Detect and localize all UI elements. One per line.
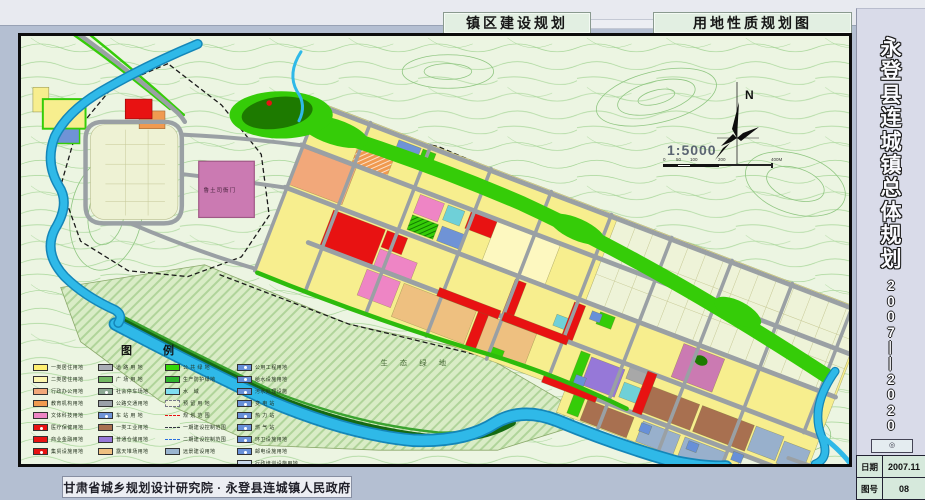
legend-item: 公 共 绿 地: [165, 361, 237, 373]
sidebar-title-char: 永: [881, 37, 902, 60]
scale-tick: 0: [663, 157, 666, 162]
legend-item: 环卫设施用地: [237, 434, 311, 446]
legend-swatch: [98, 436, 113, 443]
legend-swatch: [165, 439, 180, 440]
sidebar-title-char: 县: [881, 84, 902, 107]
map-title-right: 用地性质规划图: [653, 12, 852, 34]
legend-item: 一类居住用地: [33, 361, 98, 373]
sidebar-title-char: 镇: [881, 154, 902, 177]
legend-swatch: [237, 412, 252, 419]
credit-box: 甘肃省城乡规划设计研究院 · 永登县连城镇人民政府: [62, 476, 352, 498]
legend-label: 社会停车场地: [116, 388, 148, 395]
legend-label: 污水处理设施: [255, 388, 287, 395]
legend-item: 道 路 用 地: [98, 361, 165, 373]
legend-label: 燃 气 站: [255, 424, 275, 431]
legend-column: 公用工程用地给水设施用地污水处理设施变 电 站热 力 站燃 气 站环卫设施用地邮…: [237, 361, 311, 467]
legend-item: 普通仓储用地: [98, 434, 165, 446]
legend-label: 行政培训设施用地: [255, 460, 298, 467]
legend-label: 文体科技用地: [51, 412, 83, 419]
legend-swatch: [33, 376, 48, 383]
map-frame: 鲁土司衙门 生 态 绿 地 N: [18, 33, 852, 467]
legend-swatch: [98, 412, 113, 419]
legend-item: 行政培训设施用地: [237, 458, 311, 467]
legend-label: 二期建设控制范围: [183, 436, 226, 443]
legend-item: 变 电 站: [237, 397, 311, 409]
sidebar-info-row: 图号08: [856, 478, 925, 500]
sidebar-title-char: 城: [881, 131, 902, 154]
legend-label: 热 力 站: [255, 412, 275, 419]
legend-label: 公 共 绿 地: [183, 364, 210, 371]
legend-label: 行政办公用地: [51, 388, 83, 395]
legend-item: 燃 气 站: [237, 421, 311, 433]
legend-label: 变 电 站: [255, 400, 275, 407]
map-title-left: 镇区建设规划: [443, 12, 591, 34]
scale-ticks: 050100200400M: [663, 157, 793, 163]
legend-swatch: [165, 427, 180, 428]
legend-swatch: [33, 412, 48, 419]
legend-item: 广 场 用 地: [98, 373, 165, 385]
legend-item: 水 域: [165, 385, 237, 397]
legend-column: 道 路 用 地广 场 用 地社会停车场地公路交通用地车 站 用 地一类工业用地普…: [98, 361, 165, 467]
legend-swatch: [98, 364, 113, 371]
legend-item: 教育机构用地: [33, 397, 98, 409]
sidebar-title-char: 连: [881, 107, 902, 130]
legend-item: 预 留 用 地: [165, 397, 237, 409]
legend-item: 医疗保健用地: [33, 421, 98, 433]
sidebar-period-char: 7: [887, 325, 895, 341]
legend-swatch: [237, 424, 252, 431]
sidebar-info-row: 日期2007.11: [856, 456, 925, 478]
legend-swatch: [165, 376, 180, 383]
legend-item: 规 划 范 围: [165, 409, 237, 421]
sidebar-title-char: 规: [881, 224, 902, 247]
legend-label: 露天堆场用地: [116, 448, 148, 455]
legend-swatch: [33, 424, 48, 431]
sidebar-ornament: ◎: [871, 439, 913, 453]
sidebar-title-char: 划: [881, 248, 902, 271]
sidebar-period-char: 0: [887, 387, 895, 403]
legend-swatch: [98, 376, 113, 383]
legend-item: 行政办公用地: [33, 385, 98, 397]
scale-tick: 400M: [771, 157, 782, 162]
legend-swatch: [98, 424, 113, 431]
scale-bar-segments: [663, 163, 793, 167]
sidebar-info-table: 日期2007.11图号08: [856, 455, 925, 500]
legend-swatch: [165, 400, 180, 407]
scale-tick: 200: [718, 157, 726, 162]
legend-item: 热 力 站: [237, 409, 311, 421]
legend-label: 生产防护绿地: [183, 376, 215, 383]
legend-label: 邮电设施用地: [255, 448, 287, 455]
legend-swatch: [33, 436, 48, 443]
eco-green-label: 生 态 绿 地: [380, 357, 451, 367]
sidebar-period-char: —: [883, 341, 899, 355]
info-value: 08: [883, 478, 925, 499]
sidebar-period-char: 2: [887, 403, 895, 419]
sidebar-period-char: 2: [887, 278, 895, 294]
legend-label: 水 域: [183, 388, 199, 395]
legend-swatch: [165, 448, 180, 455]
legend-item: 一类工业用地: [98, 421, 165, 433]
legend-item: 公用工程用地: [237, 361, 311, 373]
legend-swatch: [98, 400, 113, 407]
legend-swatch: [237, 460, 252, 467]
legend-item: 污水处理设施: [237, 385, 311, 397]
legend-swatch: [237, 448, 252, 455]
legend-swatch: [165, 364, 180, 371]
legend-label: 预 留 用 地: [183, 400, 210, 407]
legend-label: 道 路 用 地: [116, 364, 143, 371]
info-label: 日期: [856, 456, 883, 477]
legend-swatch: [33, 448, 48, 455]
legend-label: 医疗保健用地: [51, 424, 83, 431]
sidebar: 永登县连城镇总体规划 2007——2020 ◎ 日期2007.11图号08: [856, 8, 925, 500]
legend-swatch: [237, 436, 252, 443]
legend-item: 给水设施用地: [237, 373, 311, 385]
legend-label: 一期建设控制范围: [183, 424, 226, 431]
sidebar-period-char: —: [883, 357, 899, 371]
legend-swatch: [33, 364, 48, 371]
sidebar-title: 永登县连城镇总体规划: [857, 9, 925, 271]
sidebar-title-char: 体: [881, 201, 902, 224]
info-value: 2007.11: [883, 456, 925, 477]
legend-item: 远景建设用地: [165, 446, 237, 458]
legend-item: 邮电设施用地: [237, 446, 311, 458]
legend-label: 商业金融用地: [51, 436, 83, 443]
legend-item: 商业金融用地: [33, 434, 98, 446]
sidebar-period: 2007——2020: [857, 271, 925, 434]
title-connector: [589, 19, 655, 29]
legend-label: 公路交通用地: [116, 400, 148, 407]
legend-column: 公 共 绿 地生产防护绿地水 域预 留 用 地规 划 范 围一期建设控制范围二期…: [165, 361, 237, 467]
legend-swatch: [98, 388, 113, 395]
legend-item: 露天堆场用地: [98, 446, 165, 458]
legend-column: 一类居住用地二类居住用地行政办公用地教育机构用地文体科技用地医疗保健用地商业金融…: [33, 361, 98, 467]
legend: 图 例 一类居住用地二类居住用地行政办公用地教育机构用地文体科技用地医疗保健用地…: [33, 342, 311, 467]
scale-tick: 100: [690, 157, 698, 162]
legend-swatch: [33, 400, 48, 407]
legend-label: 普通仓储用地: [116, 436, 148, 443]
legend-label: 一类工业用地: [116, 424, 148, 431]
legend-label: 集贸设施用地: [51, 448, 83, 455]
legend-label: 教育机构用地: [51, 400, 83, 407]
sidebar-period-char: 0: [887, 294, 895, 310]
legend-swatch: [237, 364, 252, 371]
legend-swatch: [33, 388, 48, 395]
sidebar-period-char: 0: [887, 309, 895, 325]
sidebar-title-char: 登: [881, 60, 902, 83]
heritage-site-block: 鲁土司衙门: [199, 161, 255, 217]
scale-bar: 050100200400M: [663, 157, 793, 167]
legend-columns: 一类居住用地二类居住用地行政办公用地教育机构用地文体科技用地医疗保健用地商业金融…: [33, 361, 311, 467]
info-label: 图号: [856, 478, 883, 499]
legend-item: 文体科技用地: [33, 409, 98, 421]
legend-swatch: [237, 400, 252, 407]
legend-label: 给水设施用地: [255, 376, 287, 383]
sidebar-title-char: 总: [881, 177, 902, 200]
legend-item: 车 站 用 地: [98, 409, 165, 421]
legend-swatch: [165, 415, 180, 416]
legend-label: 公用工程用地: [255, 364, 287, 371]
legend-title: 图 例: [121, 342, 311, 358]
sidebar-period-char: 2: [887, 372, 895, 388]
scale-tick: 50: [676, 157, 681, 162]
legend-item: 公路交通用地: [98, 397, 165, 409]
legend-item: 一期建设控制范围: [165, 421, 237, 433]
legend-item: 社会停车场地: [98, 385, 165, 397]
page: { "header": { "left_title": "镇区建设规划", "r…: [0, 0, 925, 500]
sidebar-period-char: 0: [887, 418, 895, 434]
scale-text: 1:5000: [667, 142, 717, 158]
legend-item: 二期建设控制范围: [165, 434, 237, 446]
legend-item: 集贸设施用地: [33, 446, 98, 458]
legend-swatch: [98, 448, 113, 455]
legend-item: 二类居住用地: [33, 373, 98, 385]
legend-swatch: [237, 376, 252, 383]
legend-label: 环卫设施用地: [255, 436, 287, 443]
legend-label: 广 场 用 地: [116, 376, 143, 383]
legend-label: 车 站 用 地: [116, 412, 143, 419]
legend-label: 二类居住用地: [51, 376, 83, 383]
legend-item: 生产防护绿地: [165, 373, 237, 385]
legend-label: 规 划 范 围: [183, 412, 210, 419]
legend-swatch: [237, 388, 252, 395]
legend-label: 一类居住用地: [51, 364, 83, 371]
legend-swatch: [165, 388, 180, 395]
legend-label: 远景建设用地: [183, 448, 215, 455]
heritage-site-label: 鲁土司衙门: [204, 186, 236, 194]
